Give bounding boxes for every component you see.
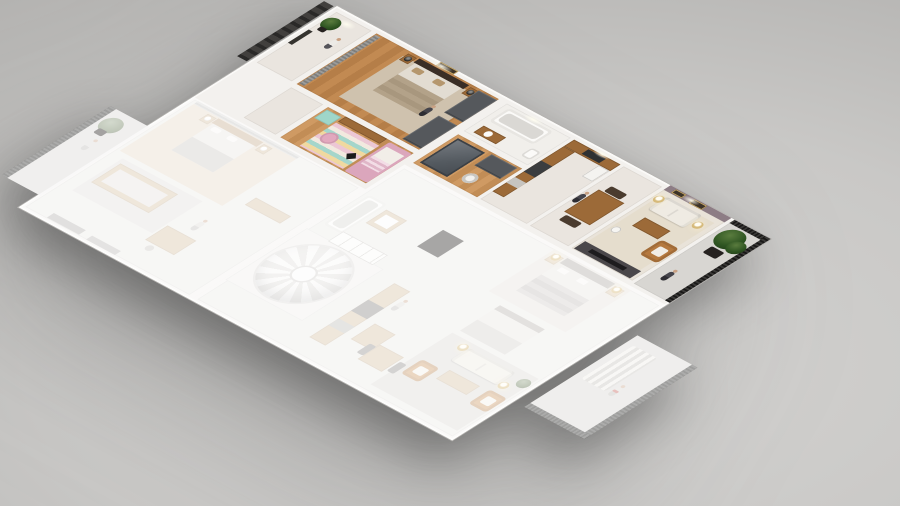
kids-toy-dark <box>346 153 356 159</box>
render-canvas <box>0 0 900 506</box>
floorplan <box>19 6 771 440</box>
right-balcony-railing-bottom <box>524 403 590 439</box>
right-balcony-lounger <box>581 345 657 391</box>
left-balcony-person <box>79 141 96 151</box>
floorplan-shadow <box>0 0 900 506</box>
